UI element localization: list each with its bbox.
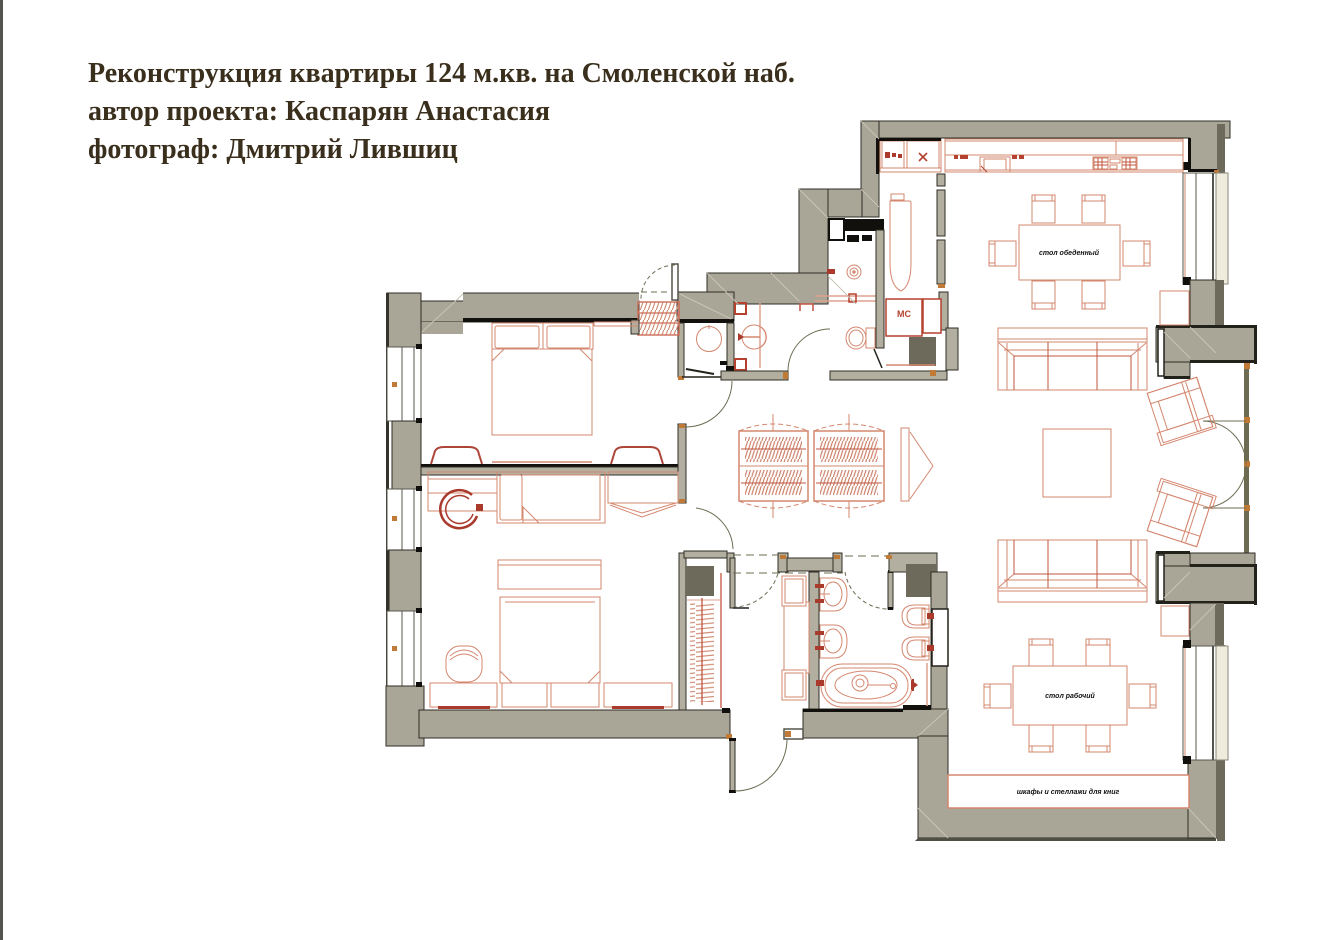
svg-text:стол обеденный: стол обеденный [1039,249,1100,257]
svg-text:шкафы и стеллажи для книг: шкафы и стеллажи для книг [1017,788,1120,796]
svg-text:МС: МС [897,309,911,319]
svg-text:стол рабочий: стол рабочий [1045,692,1095,700]
